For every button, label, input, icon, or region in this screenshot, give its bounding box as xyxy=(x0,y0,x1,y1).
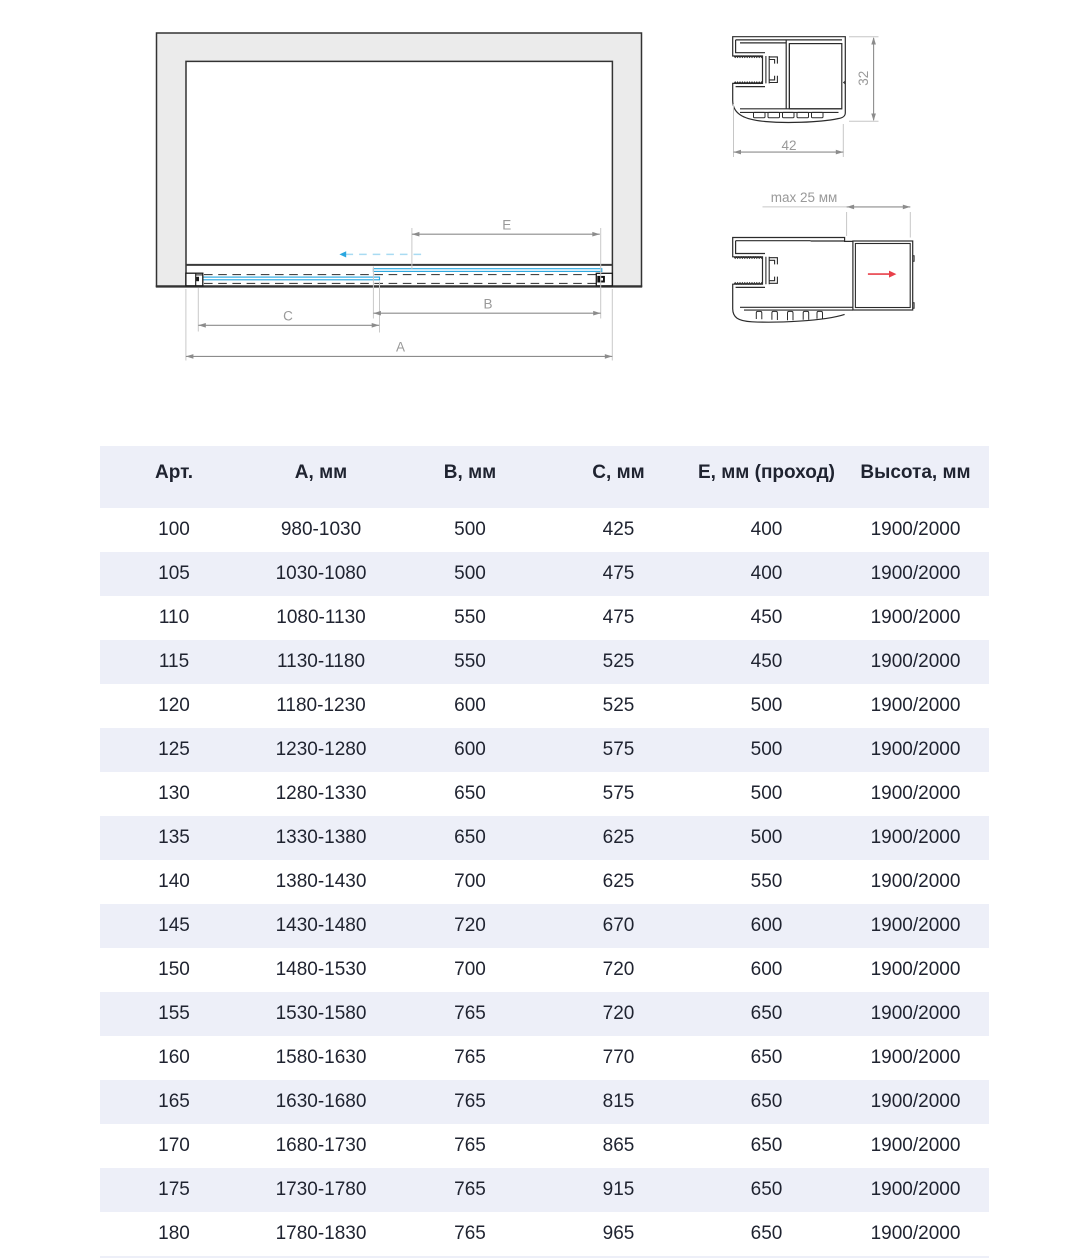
svg-text:32: 32 xyxy=(856,71,871,86)
svg-text:E: E xyxy=(502,217,511,232)
svg-text:max 25 мм: max 25 мм xyxy=(771,190,838,205)
svg-text:A: A xyxy=(396,340,405,355)
svg-text:B: B xyxy=(483,296,492,311)
svg-text:42: 42 xyxy=(781,138,796,153)
svg-text:C: C xyxy=(283,308,293,323)
